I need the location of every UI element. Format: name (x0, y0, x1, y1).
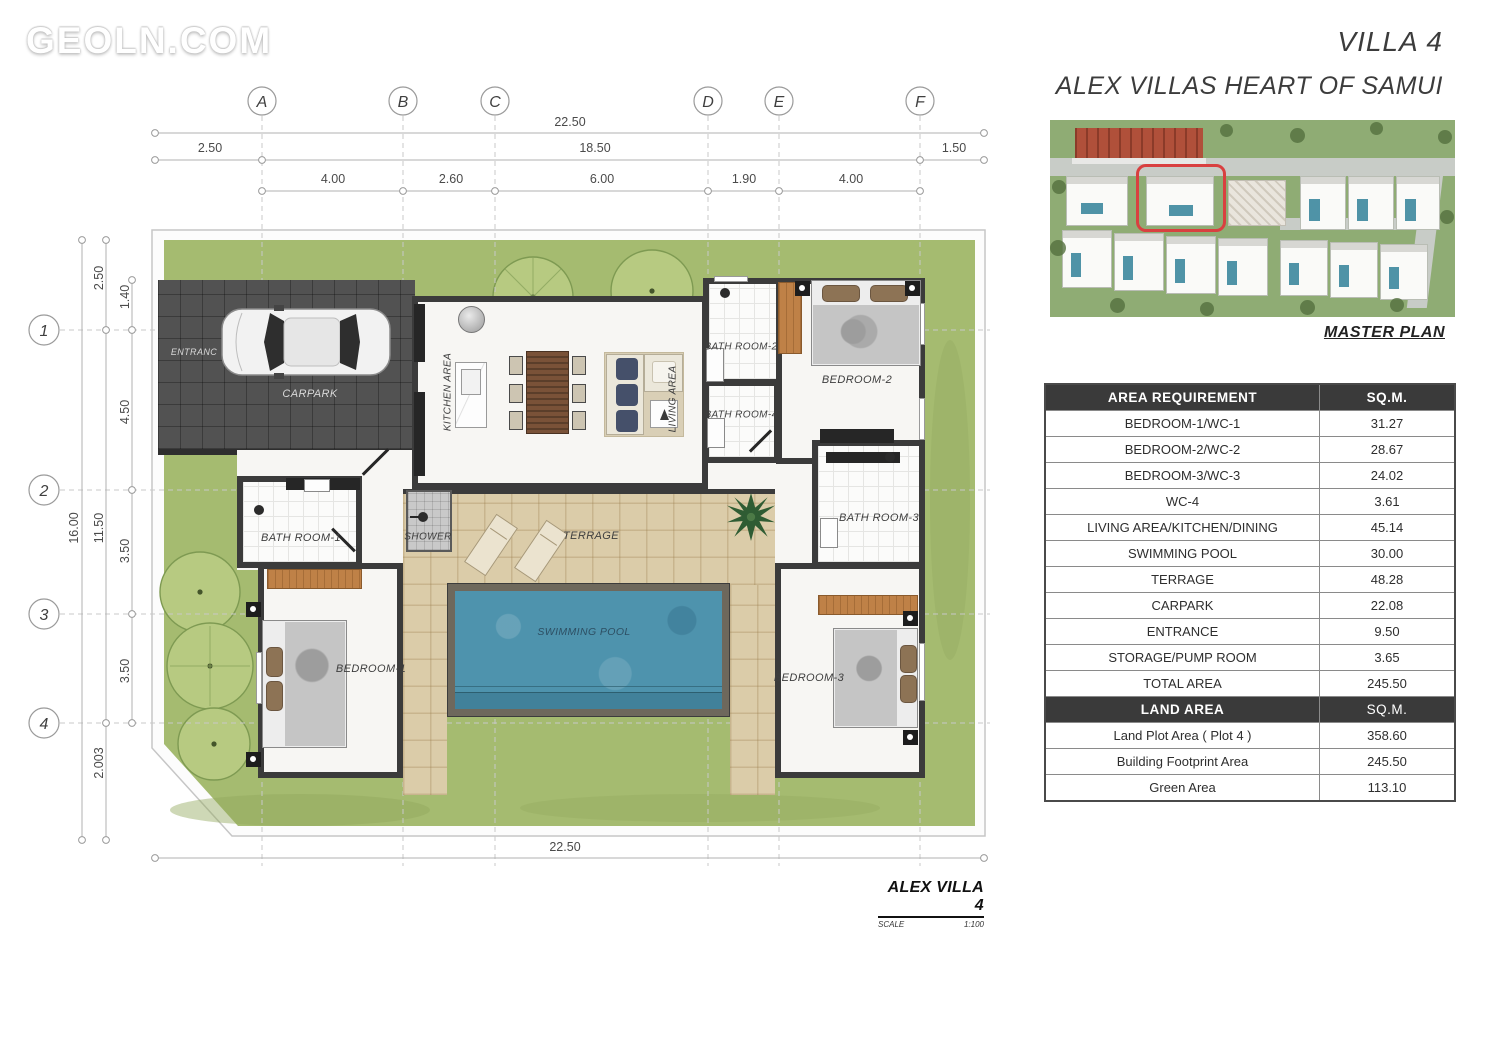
bedroom2-window-2 (919, 398, 925, 440)
label-bath2: BATH ROOM-2 (704, 342, 777, 353)
bath3-shower-head-icon (885, 452, 895, 462)
masterplan-villa (1218, 238, 1268, 296)
dim-top-right: 1.50 (942, 141, 966, 155)
dining-chair (572, 356, 586, 375)
masterplan-clubhouse (1075, 128, 1203, 158)
table-header-row: AREA REQUIREMENT SQ.M. (1045, 384, 1455, 411)
sqm-header: SQ.M. (1320, 384, 1456, 411)
kitchen-counter (414, 304, 425, 362)
label-shower: SHOWER (404, 532, 451, 543)
label-bedroom1: BEDROOM-1 (336, 663, 406, 675)
masterplan-villa (1062, 230, 1112, 288)
table-row: BEDROOM-2/WC-228.67 (1045, 437, 1455, 463)
label-bath3: BATH ROOM-3 (839, 512, 919, 524)
pool-step-line (455, 686, 722, 688)
kitchen-sink (461, 369, 481, 395)
label-bedroom2: BEDROOM-2 (822, 374, 892, 386)
dim-i3: 3.50 (118, 539, 132, 563)
grid-row-4: 4 (40, 716, 49, 733)
master-plan-label: MASTER PLAN (1324, 324, 1445, 342)
dining-chair (509, 356, 523, 375)
masterplan-villa (1380, 244, 1428, 300)
dim-ab: 4.00 (321, 172, 345, 186)
bedroom1-wardrobe (267, 569, 362, 589)
label-kitchen: KITCHEN AREA (443, 353, 454, 431)
scale-value: 1:100 (964, 920, 984, 929)
area-table: AREA REQUIREMENT SQ.M. BEDROOM-1/WC-131.… (1044, 383, 1456, 802)
dining-chair (509, 411, 523, 430)
nightstand (246, 602, 261, 617)
label-bedroom3: BEDROOM-3 (774, 672, 844, 684)
shower-pipe (410, 516, 419, 518)
bath3-counter (820, 429, 894, 443)
grid-col-a: A (256, 94, 268, 111)
sofa-cushion (616, 410, 638, 432)
sofa-cushion (616, 358, 638, 380)
grid-col-f: F (915, 94, 926, 111)
swimming-pool (447, 583, 730, 717)
floor-plan-sheet: GEOLN.COM (0, 0, 1500, 1059)
bed-bedroom1 (262, 620, 347, 748)
table-row: Land Plot Area ( Plot 4 )358.60 (1045, 723, 1455, 749)
dim-top-total: 22.50 (554, 115, 585, 129)
masterplan-villa (1066, 176, 1128, 226)
bed-bedroom3 (833, 628, 918, 728)
dim-left-mid: 11.50 (92, 513, 106, 543)
masterplan-villa (1348, 176, 1394, 230)
land-area-header-row: LAND AREA SQ.M. (1045, 697, 1455, 723)
car-icon (220, 305, 392, 379)
masterplan-villa (1280, 240, 1328, 296)
villa4-highlight (1136, 164, 1226, 232)
bath2-toilet (706, 348, 724, 382)
kitchen-stove-icon (458, 306, 485, 333)
nightstand (903, 730, 918, 745)
table-row: TERRAGE48.28 (1045, 567, 1455, 593)
table-row: LIVING AREA/KITCHEN/DINING45.14 (1045, 515, 1455, 541)
masterplan-villa (1330, 242, 1378, 298)
nightstand (246, 752, 261, 767)
land-area-header: LAND AREA (1045, 697, 1320, 723)
masterplan-villa (1114, 233, 1164, 291)
dim-cd: 6.00 (590, 172, 614, 186)
dim-ef: 4.00 (839, 172, 863, 186)
terrace-left-arm (403, 585, 447, 795)
bath4-toilet (707, 418, 725, 448)
kitchen-island (455, 362, 487, 428)
dim-i1: 1.40 (118, 285, 132, 309)
dining-chair (572, 384, 586, 403)
grid-row-2: 2 (39, 483, 49, 500)
table-row: STORAGE/PUMP ROOM3.65 (1045, 645, 1455, 671)
label-bath1: BATH ROOM-1 (261, 532, 341, 544)
dim-bottom-total: 22.50 (549, 840, 580, 854)
bath3-toilet (820, 518, 838, 548)
bath1-sink (304, 479, 330, 492)
dim-top-left: 2.50 (198, 141, 222, 155)
table-row: BEDROOM-3/WC-324.02 (1045, 463, 1455, 489)
table-row: ENTRANCE9.50 (1045, 619, 1455, 645)
palm-plant-icon (726, 492, 776, 542)
grid-col-b: B (398, 94, 409, 111)
dining-chair (509, 384, 523, 403)
label-bath4: BATH ROOM-4 (704, 410, 777, 421)
sofa-cushion (616, 384, 638, 406)
label-living: LIVING AREA (668, 366, 679, 433)
dining-chair (572, 411, 586, 430)
kitchen-counter-2 (414, 392, 425, 476)
table-row: WC-43.61 (1045, 489, 1455, 515)
dim-de: 1.90 (732, 172, 756, 186)
label-terrage: TERRAGE (563, 530, 619, 542)
bedroom3-window (919, 643, 925, 701)
grid-col-c: C (489, 94, 501, 111)
masterplan-lot (1228, 180, 1286, 226)
table-row: CARPARK22.08 (1045, 593, 1455, 619)
masterplan-villa (1166, 236, 1216, 294)
shower-head-icon (418, 512, 428, 522)
masterplan-villa (1396, 176, 1440, 230)
grid-col-d: D (702, 94, 714, 111)
bath2-window (714, 276, 748, 282)
terrace-right-arm (730, 585, 775, 795)
dim-top-mid: 18.50 (579, 141, 610, 155)
dim-i4: 3.50 (118, 659, 132, 683)
dim-left-bottom: 2.003 (92, 747, 106, 778)
label-entrance: ENTRANC (171, 347, 217, 357)
plan-title: ALEX VILLA 4 (878, 879, 984, 918)
grid-row-3: 3 (40, 607, 49, 624)
grid-col-e: E (774, 94, 785, 111)
grid-row-1: 1 (40, 323, 49, 340)
nightstand (903, 611, 918, 626)
table-row-total: TOTAL AREA245.50 (1045, 671, 1455, 697)
dining-table (526, 351, 569, 434)
area-requirement-header: AREA REQUIREMENT (1045, 384, 1320, 411)
plan-title-block: ALEX VILLA 4 SCALE 1:100 (878, 879, 984, 929)
table-row: Building Footprint Area245.50 (1045, 749, 1455, 775)
nightstand (905, 281, 920, 296)
bath1-shower-head-icon (254, 505, 264, 515)
label-pool: SWIMMING POOL (537, 626, 630, 638)
project-title: ALEX VILLAS HEART OF SAMUI (1056, 72, 1443, 101)
nightstand (795, 281, 810, 296)
dim-bc: 2.60 (439, 172, 463, 186)
table-row: Green Area113.10 (1045, 775, 1455, 802)
dim-i2: 4.50 (118, 400, 132, 424)
pool-water (455, 591, 722, 709)
land-sqm-header: SQ.M. (1320, 697, 1456, 723)
bath2-shower-head-icon (720, 288, 730, 298)
label-carpark: CARPARK (282, 388, 337, 400)
villa-title: VILLA 4 (1337, 26, 1443, 58)
pool-step (455, 692, 722, 709)
table-row: SWIMMING POOL30.00 (1045, 541, 1455, 567)
dim-left-top: 2.50 (92, 266, 106, 290)
table-row: BEDROOM-1/WC-131.27 (1045, 411, 1455, 437)
masterplan-villa (1300, 176, 1346, 230)
scale-label: SCALE (878, 920, 904, 929)
master-plan-image (1050, 120, 1455, 317)
outdoor-shower (406, 490, 452, 552)
dim-left-total: 16.00 (67, 512, 81, 543)
